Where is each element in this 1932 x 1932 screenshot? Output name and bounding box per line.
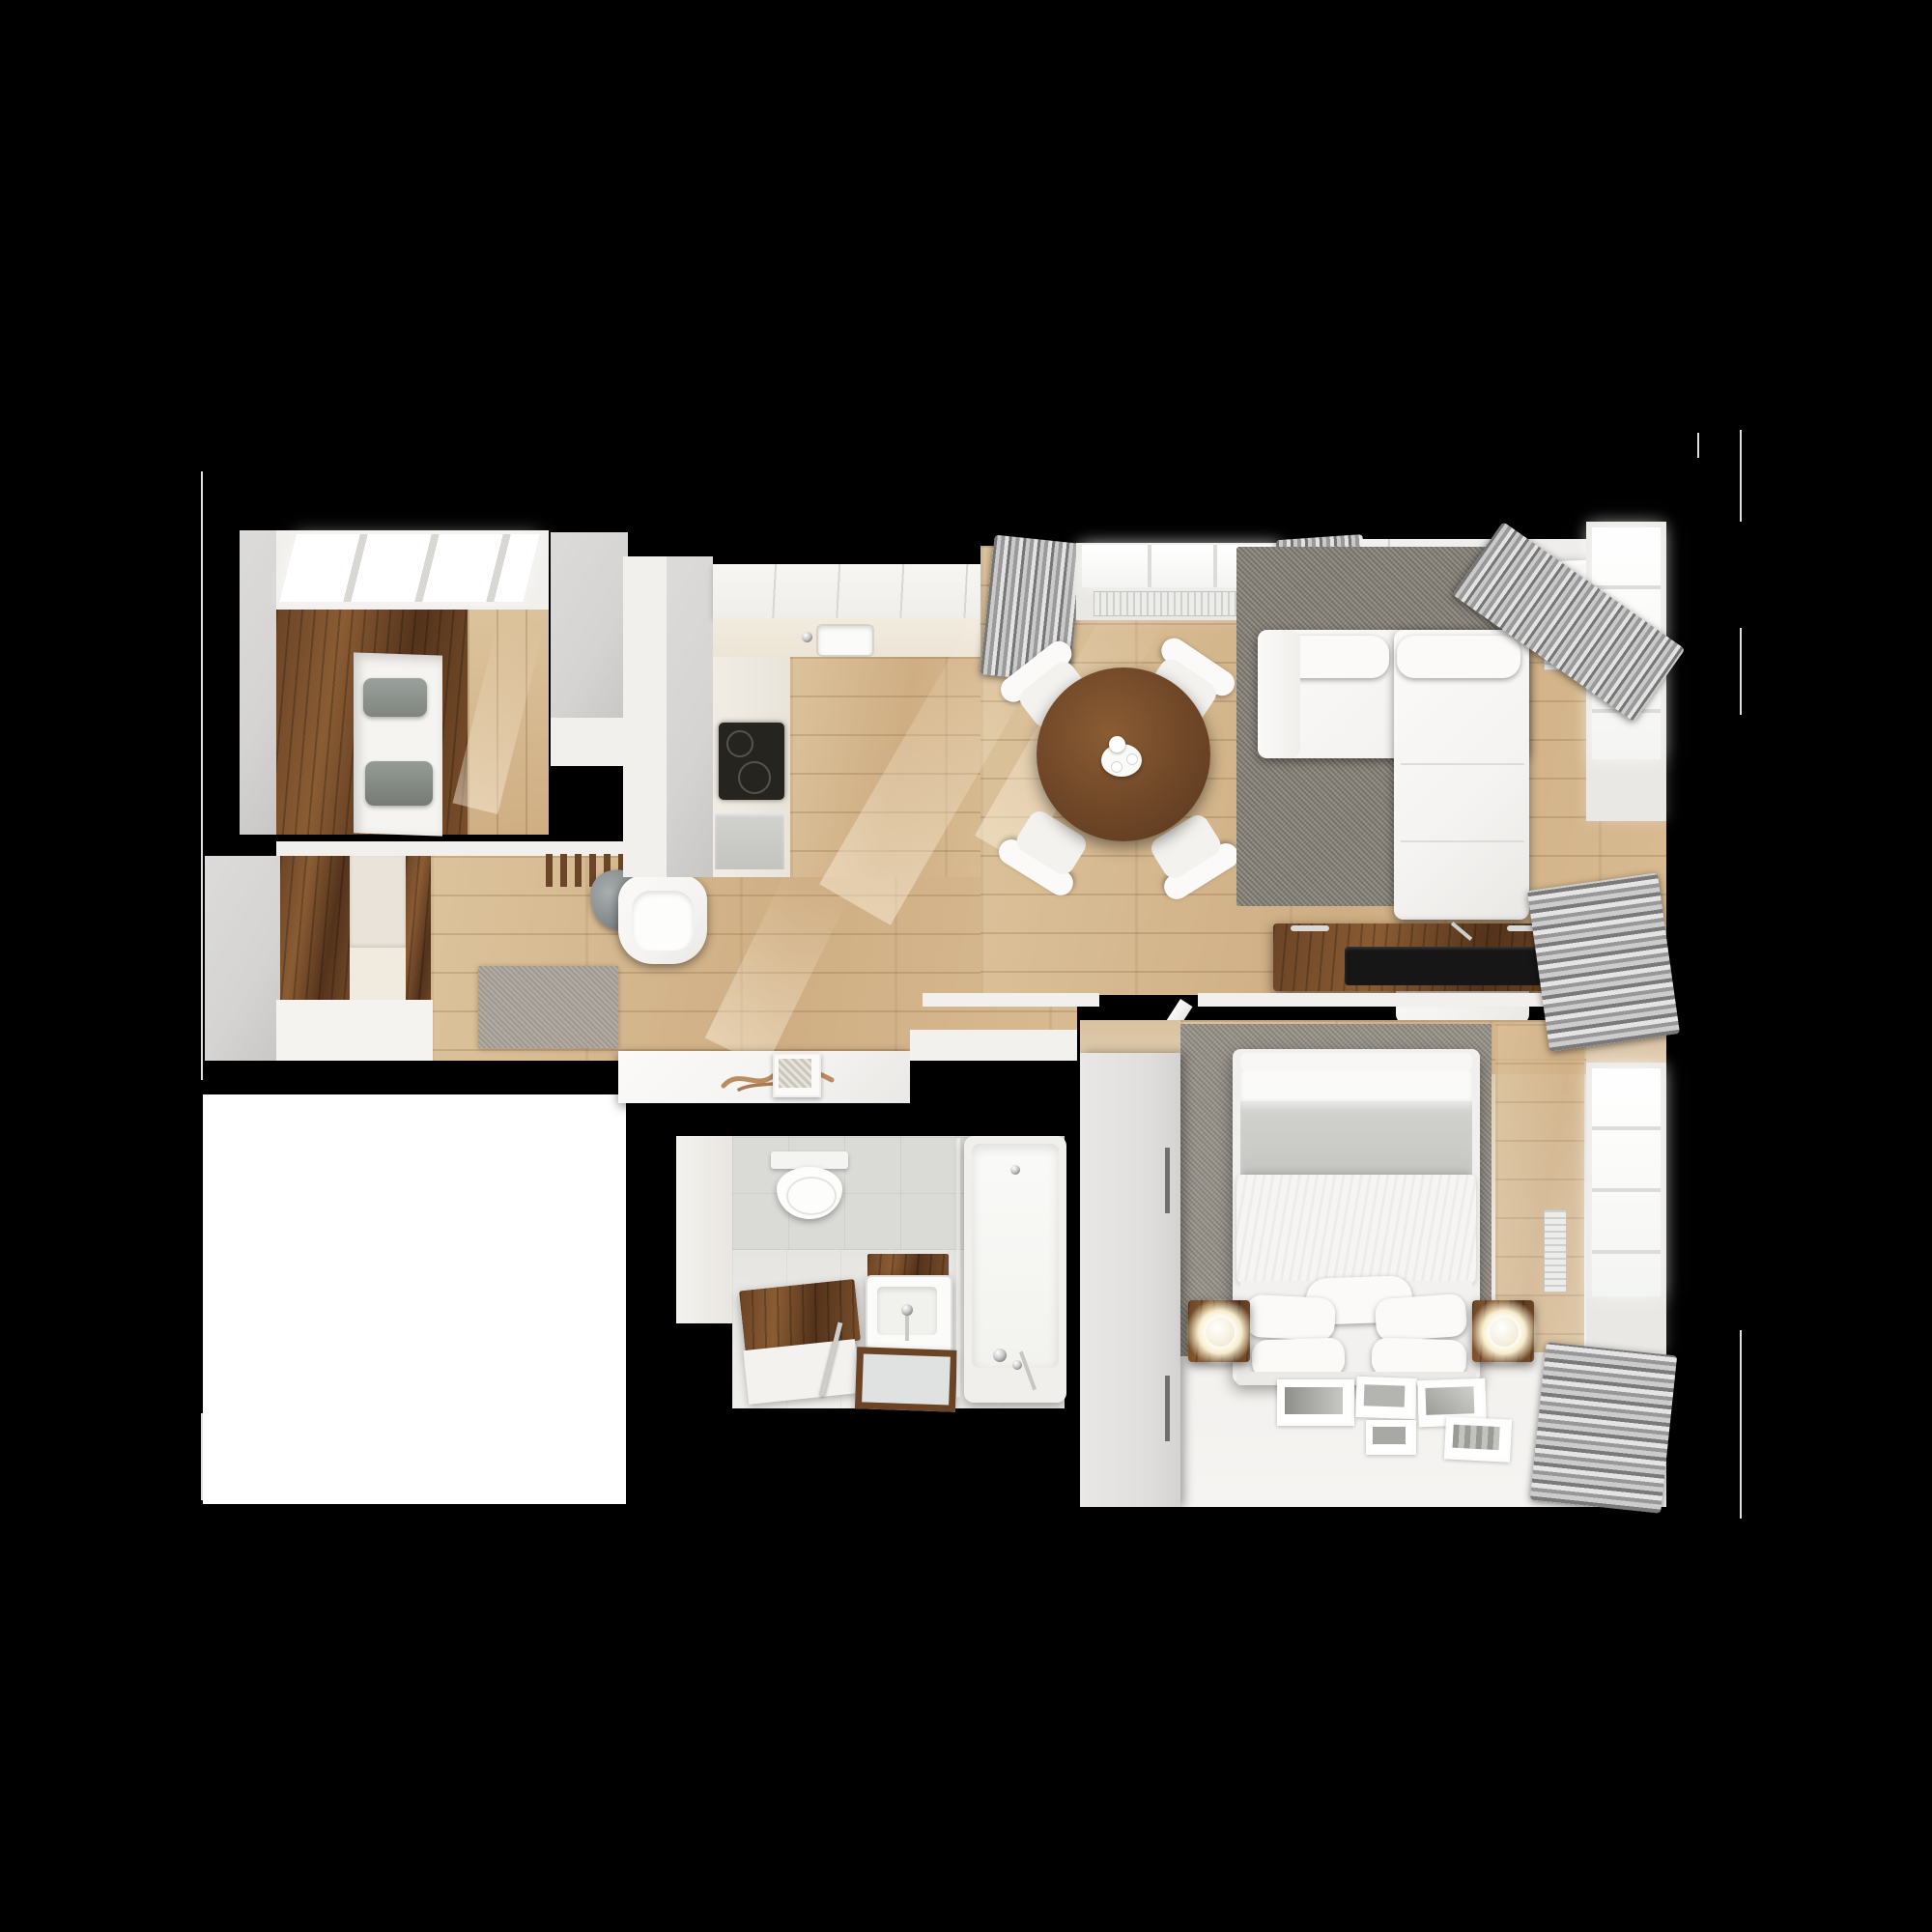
toilet-seat-line [786,1177,837,1215]
sofa-seam [1401,763,1524,765]
bed-duvet [1236,1175,1476,1283]
bathtub-inner [972,1144,1059,1368]
sofa-back-cushion [1397,636,1520,678]
cooktop-burner [726,730,753,757]
closet-floor [468,610,549,835]
console-deco-box-face [779,1059,811,1088]
photo [1285,1387,1343,1414]
pillow [1245,1294,1336,1342]
bed-foot-bar [1240,1053,1472,1070]
left-frame-line [201,471,203,1080]
bedroom-right-window-glass [1592,1068,1661,1296]
window-mullion [1592,585,1661,589]
window-mullion [1213,545,1217,587]
basin-faucet-stem [905,1316,909,1341]
hall-rug [478,966,618,1048]
bedroom-right-radiator [1544,1209,1567,1293]
floor-photo-frame [1366,1420,1416,1455]
tub-faucet-handle [1012,1360,1022,1370]
tub-faucet [993,1349,1007,1362]
right-frame-line-bottom [1740,1330,1742,1519]
bedroom-bottom-curtain [1530,1342,1677,1513]
mid-curtain [1527,872,1680,1051]
kitchen-sink [816,624,874,657]
living-bedroom-wall [923,993,1099,1007]
hall-floor-strip [910,1030,1077,1061]
floor-plan-render [0,0,1932,1932]
sofa-armrest [1258,630,1300,758]
window-mullion [1148,545,1151,587]
window-mullion [1592,1250,1661,1254]
hall-white-floor [276,1000,433,1061]
wardrobe-handle [1165,1148,1170,1213]
floor-photo-frame [1277,1379,1354,1426]
kitchen-left-wall-gray [667,556,713,877]
right-frame-line-mid [1740,628,1742,715]
glass-partition [956,1138,960,1397]
teacup [1126,753,1138,765]
closet-left-wall [240,530,276,835]
kitchen-floor [790,657,980,877]
bed-mattress-top [1240,1070,1472,1103]
teapot [1109,736,1125,753]
closet-right-wall-column [551,532,628,718]
kitchen-upper-cabinets [713,564,980,618]
hall-left-wall [205,856,280,1061]
closet-door-recess [551,718,628,766]
bed-gray-blanket [1240,1101,1472,1177]
bathtub-drain [1010,1165,1020,1175]
cooktop-burner [738,761,771,794]
hall-armchair-cushion [632,891,694,951]
floor-photo-frame [1444,1416,1512,1462]
photo [1364,1384,1406,1406]
window-mullion [1592,1188,1661,1192]
closet-skylight [279,534,539,602]
sphere-lamp [1490,1318,1519,1347]
kitchen-left-wall-white [623,556,667,877]
basin-shelf [867,1254,949,1277]
sphere-lamp [1206,1318,1235,1347]
sink-faucet [802,632,812,642]
window-mullion [1592,1126,1661,1130]
hall-cabinet-front-upper [350,856,406,948]
wardrobe-handle [1165,1376,1170,1441]
frame-tick [1697,433,1699,458]
sofa-seam [1401,840,1524,842]
appliance-front [715,813,784,869]
right-frame-line-top [1740,430,1742,522]
floor-photo-frame [1355,1377,1416,1419]
photo [1373,1427,1406,1444]
floor-mirror [855,1347,957,1412]
basin-faucet [901,1304,913,1316]
bathroom-tall-cabinet [676,1136,732,1323]
photo [1453,1425,1500,1450]
teacup [1111,761,1122,773]
folded-linens [365,761,433,806]
pillow [1375,1293,1468,1342]
console-handle [1291,925,1329,931]
photo [1425,1386,1474,1415]
folded-linens [363,678,427,717]
blank-white-area [203,1094,626,1504]
